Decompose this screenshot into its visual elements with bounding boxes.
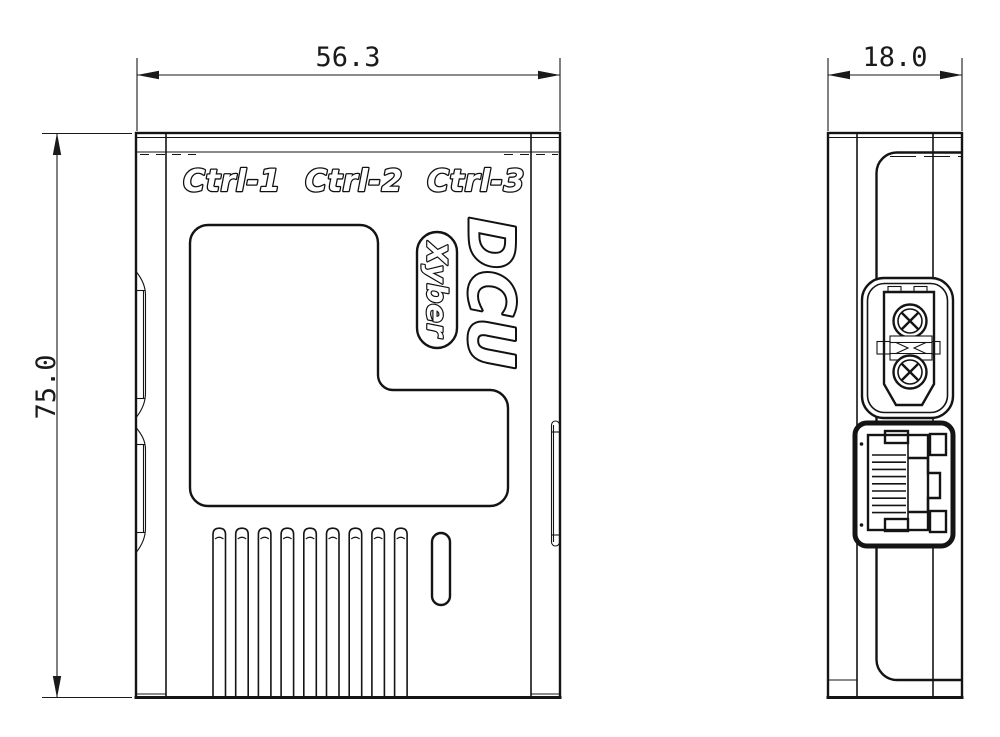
width-dim-text: 56.3: [315, 42, 380, 73]
power-terminal-top: [894, 305, 927, 338]
port-label-ctrl1: Ctrl-1: [183, 164, 281, 199]
rj45-ethernet-port: [855, 423, 953, 546]
port-label-ctrl3: Ctrl-3: [427, 164, 525, 199]
brand-badge-text: Xyber: [421, 240, 454, 339]
product-name: DCU: [455, 217, 528, 370]
brand-badge: Xyber: [417, 232, 457, 348]
port-label-ctrl2: Ctrl-2: [305, 164, 403, 199]
drawing-sheet: 56.3 75.0 18.0: [0, 0, 1000, 737]
xt30-power-connector: [862, 278, 953, 418]
power-terminal-bottom: [894, 356, 927, 389]
height-dim-text: 75.0: [31, 354, 62, 419]
depth-dim-text: 18.0: [862, 42, 927, 73]
